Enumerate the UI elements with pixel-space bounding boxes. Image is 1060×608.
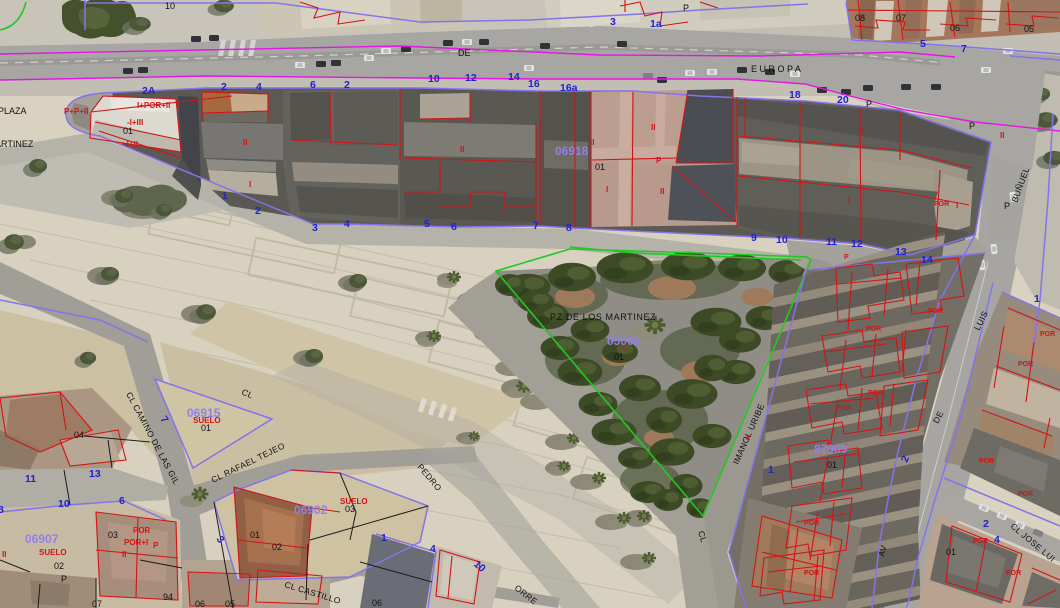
svg-text:5: 5 (920, 38, 926, 50)
svg-text:03: 03 (108, 530, 118, 540)
svg-text:POR: POR (866, 326, 881, 333)
svg-text:3: 3 (610, 16, 616, 28)
svg-text:I: I (848, 196, 850, 205)
svg-text:13: 13 (89, 468, 101, 480)
svg-text:13: 13 (895, 246, 907, 258)
svg-text:I I: I I (619, 346, 625, 353)
svg-text:01: 01 (946, 547, 956, 557)
svg-text:P: P (153, 541, 159, 550)
svg-text:POR: POR (934, 201, 949, 208)
svg-text:14: 14 (921, 254, 933, 266)
svg-text:8: 8 (0, 504, 4, 516)
svg-text:94: 94 (163, 592, 173, 602)
svg-text:ARTINEZ: ARTINEZ (0, 139, 34, 149)
svg-text:I: I (956, 201, 958, 210)
svg-text:DE: DE (458, 48, 471, 58)
svg-text:18: 18 (789, 89, 801, 101)
svg-text:11: 11 (826, 236, 837, 248)
svg-text:4: 4 (994, 534, 1000, 546)
svg-text:P: P (656, 156, 662, 165)
svg-text:06918: 06918 (555, 144, 589, 158)
svg-text:-I+II: -I+II (124, 140, 138, 149)
svg-text:P: P (866, 99, 872, 109)
svg-text:6: 6 (310, 79, 316, 91)
svg-text:P: P (969, 121, 975, 131)
svg-text:II: II (590, 138, 594, 147)
svg-text:20: 20 (837, 94, 849, 106)
svg-text:07: 07 (92, 599, 102, 608)
svg-text:P: P (61, 574, 67, 584)
svg-text:POR: POR (973, 538, 988, 545)
svg-text:10: 10 (165, 1, 175, 11)
svg-text:P+P+II: P+P+II (64, 107, 88, 116)
svg-text:12: 12 (465, 72, 477, 84)
svg-text:POR: POR (804, 520, 819, 527)
svg-text:06: 06 (950, 23, 960, 33)
svg-text:1a: 1a (650, 18, 662, 30)
svg-text:POR: POR (1018, 361, 1033, 368)
svg-text:4: 4 (344, 218, 350, 230)
svg-text:1: 1 (381, 532, 387, 544)
svg-text:POR: POR (133, 526, 151, 535)
svg-text:01: 01 (614, 352, 624, 362)
svg-text:01: 01 (827, 460, 837, 470)
svg-text:01: 01 (595, 162, 605, 172)
svg-text:06907: 06907 (25, 532, 59, 546)
svg-text:SUELO: SUELO (340, 497, 368, 506)
svg-text:07: 07 (896, 13, 906, 23)
svg-text:10: 10 (58, 498, 70, 510)
svg-text:02: 02 (272, 542, 282, 552)
svg-text:8: 8 (566, 222, 572, 234)
svg-text:I: I (249, 180, 251, 189)
svg-text:2: 2 (221, 81, 227, 93)
svg-text:1: 1 (768, 464, 774, 476)
svg-text:4: 4 (256, 81, 262, 93)
svg-text:SUELO: SUELO (39, 548, 67, 557)
svg-text:3: 3 (312, 222, 318, 234)
svg-text:PZ DE LOS MARTINEZ: PZ DE LOS MARTINEZ (550, 312, 656, 322)
svg-text:5: 5 (424, 218, 430, 230)
svg-text:06: 06 (372, 598, 382, 608)
svg-text:7: 7 (533, 220, 539, 232)
svg-text:04: 04 (74, 430, 84, 440)
svg-text:POR: POR (979, 458, 994, 465)
svg-text:P: P (844, 254, 849, 261)
svg-text:II: II (1000, 131, 1004, 140)
svg-text:I+POR+II: I+POR+II (137, 101, 170, 110)
svg-text:08: 08 (855, 13, 865, 23)
svg-text:P: P (1004, 201, 1010, 211)
svg-text:7: 7 (961, 43, 967, 55)
svg-text:2: 2 (255, 205, 261, 217)
svg-text:16: 16 (528, 78, 540, 90)
svg-text:11: 11 (25, 473, 36, 485)
svg-text:PLAZA: PLAZA (0, 106, 27, 116)
svg-text:II: II (122, 550, 126, 559)
svg-text:05: 05 (1024, 24, 1034, 34)
svg-text:01: 01 (250, 530, 260, 540)
svg-text:12: 12 (851, 238, 863, 250)
svg-text:1: 1 (1034, 293, 1040, 305)
svg-text:1: 1 (222, 190, 228, 202)
svg-text:87909: 87909 (814, 442, 848, 456)
svg-text:a: a (746, 435, 750, 442)
svg-text:POR: POR (928, 308, 943, 315)
svg-text:-I+III: -I+III (127, 118, 143, 127)
svg-text:6: 6 (451, 221, 457, 233)
svg-text:10: 10 (776, 234, 788, 246)
svg-text:05: 05 (225, 599, 235, 608)
svg-text:2A: 2A (142, 85, 156, 97)
svg-text:2: 2 (344, 79, 350, 91)
svg-text:10: 10 (428, 73, 440, 85)
svg-text:2: 2 (983, 518, 989, 530)
svg-text:SUELO: SUELO (193, 416, 221, 425)
svg-text:POR: POR (1018, 491, 1033, 498)
svg-text:P: P (683, 3, 689, 13)
svg-text:POR: POR (1006, 570, 1021, 577)
svg-text:POR: POR (868, 390, 883, 397)
svg-text:II: II (651, 123, 655, 132)
svg-text:I: I (606, 185, 608, 194)
svg-text:06: 06 (195, 599, 205, 608)
svg-text:02: 02 (54, 561, 64, 571)
svg-text:POR: POR (836, 405, 851, 412)
svg-text:II: II (860, 126, 864, 135)
svg-text:POR: POR (804, 570, 819, 577)
svg-text:14: 14 (508, 71, 520, 83)
svg-text:II: II (460, 145, 464, 154)
svg-text:16a: 16a (560, 82, 578, 94)
svg-text:01: 01 (123, 126, 133, 136)
svg-text:II: II (243, 138, 247, 147)
svg-text:06902: 06902 (294, 503, 328, 517)
svg-text:POR+I: POR+I (124, 538, 148, 547)
svg-text:II: II (2, 550, 6, 559)
svg-text:4: 4 (430, 543, 436, 555)
svg-text:II: II (660, 187, 664, 196)
svg-text:I: I (502, 207, 504, 216)
svg-text:EUROPA: EUROPA (751, 64, 803, 74)
svg-text:6: 6 (119, 495, 125, 507)
svg-text:POR: POR (1040, 331, 1055, 338)
svg-text:9: 9 (751, 232, 757, 244)
